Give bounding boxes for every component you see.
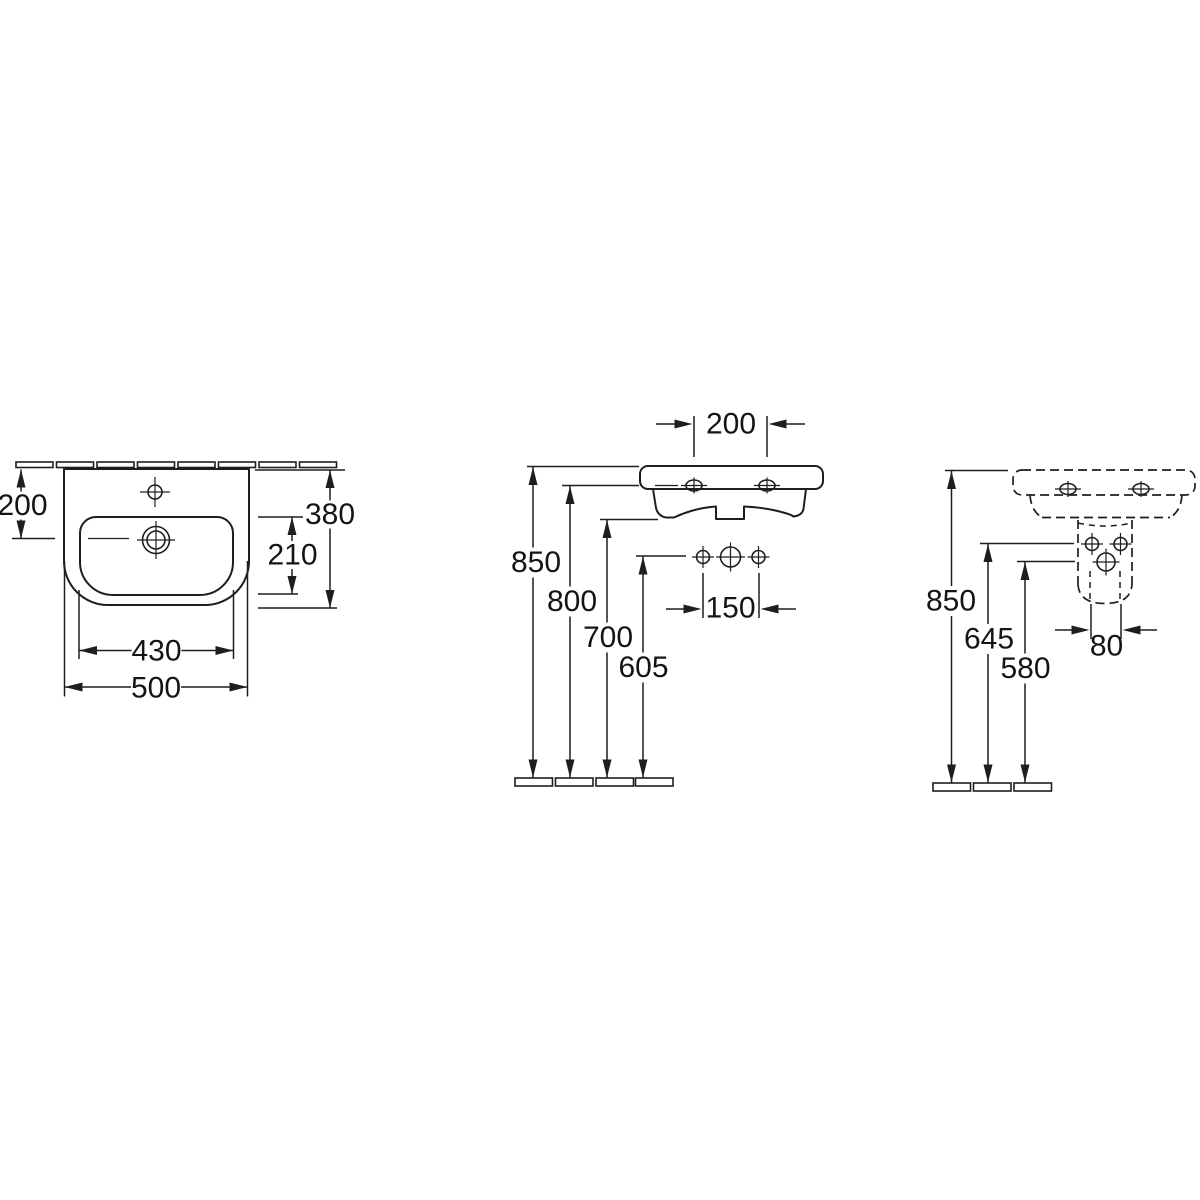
technical-drawing-canvas: 200 380 210 (0, 0, 1200, 1200)
dim-label-height-fixing-holes: 800 (547, 585, 597, 618)
dim-label-overall-width: 500 (131, 672, 181, 705)
wall-bar (259, 462, 296, 468)
dim-label-height-rim: 850 (926, 585, 976, 618)
body-hidden-left (1030, 495, 1042, 518)
arrow-down (1021, 765, 1030, 783)
drain-symbol (88, 521, 175, 559)
side-view: 200 850 800 700 (511, 408, 823, 787)
arrow-right (684, 605, 702, 614)
arrow-down (603, 760, 612, 778)
wall-bar (138, 462, 175, 468)
wall-bar (97, 462, 134, 468)
dim-height-underside: 700 (583, 520, 658, 778)
floor-hatch-rear (933, 783, 1052, 791)
dim-wall-to-drain: 200 (0, 470, 55, 539)
connection-holes (1081, 533, 1132, 576)
plan-view: 200 380 210 (0, 462, 355, 705)
floor-bar (933, 783, 971, 791)
floor-bar (596, 778, 634, 786)
tap-hole-symbol (140, 477, 170, 507)
arrow-down (947, 765, 956, 783)
column-bottom (1078, 584, 1132, 604)
wall-bar (16, 462, 53, 468)
floor-bar (556, 778, 594, 786)
floor-bar (974, 783, 1012, 791)
wall-bar (300, 462, 337, 468)
arrow-left (65, 683, 83, 692)
body-underside (653, 489, 794, 519)
floor-bar (515, 778, 553, 786)
arrow-up (947, 471, 956, 489)
dim-label-overall-depth: 380 (305, 498, 355, 531)
dim-label-waste-width: 80 (1090, 630, 1123, 663)
arrow-up (603, 520, 612, 538)
arrow-up (17, 470, 26, 488)
dim-label-bowl-width: 430 (131, 635, 181, 668)
arrow-up (529, 467, 538, 485)
wall-hatch (16, 462, 337, 468)
dim-label-height-underside: 700 (583, 621, 633, 654)
rim-hidden-outline (1013, 470, 1195, 495)
fixing-hole-right-symbol (754, 478, 780, 494)
arrow-down (639, 760, 648, 778)
dim-label-connection-spacing: 150 (705, 592, 755, 625)
dim-height-waste: 580 (1000, 562, 1075, 783)
rear-view: 850 645 580 80 (926, 470, 1195, 791)
dim-waste-width: 80 (1055, 604, 1157, 663)
arrow-down (17, 521, 26, 539)
floor-bar (636, 778, 674, 786)
dim-connection-spacing: 150 (666, 573, 796, 625)
arrow-down (529, 760, 538, 778)
body-right-side (794, 489, 807, 517)
arrow-up (326, 470, 335, 488)
arrow-down (984, 765, 993, 783)
arrow-left (761, 605, 779, 614)
wall-bar (219, 462, 256, 468)
dim-label-bowl-depth: 210 (267, 539, 317, 572)
dim-label-height-rim: 850 (511, 546, 561, 579)
dim-overall-width: 500 (65, 561, 248, 705)
dim-bowl-width: 430 (79, 590, 234, 668)
arrow-right (1072, 626, 1090, 635)
dim-height-connections: 605 (618, 556, 686, 778)
arrow-right (216, 646, 234, 655)
wall-bar (57, 462, 94, 468)
arrow-down (288, 576, 297, 594)
arrow-up (566, 486, 575, 504)
arrow-right (230, 683, 248, 692)
dim-label-height-connections: 605 (618, 651, 668, 684)
arrow-left (79, 646, 97, 655)
arrow-left (1123, 626, 1141, 635)
floor-bar (1014, 783, 1052, 791)
wall-bar (178, 462, 215, 468)
dim-label-height-connections: 645 (964, 623, 1014, 656)
floor-hatch-side (515, 778, 673, 786)
dim-label-height-waste: 580 (1000, 652, 1050, 685)
column-top (1078, 523, 1132, 526)
body-hidden-right (1170, 495, 1182, 518)
arrow-right (675, 420, 693, 429)
dim-hole-spacing: 200 (656, 408, 805, 458)
arrow-up (288, 517, 297, 535)
dim-label-wall-to-drain: 200 (0, 489, 48, 522)
dim-label-hole-spacing: 200 (706, 408, 756, 441)
arrow-up (1021, 562, 1030, 580)
arrow-up (984, 544, 993, 562)
connection-holes (692, 543, 770, 572)
arrow-down (566, 760, 575, 778)
arrow-up (639, 557, 648, 575)
arrow-left (769, 420, 787, 429)
arrow-down (326, 590, 335, 608)
washbasin-installation-drawing: 200 380 210 (0, 0, 1200, 1200)
fixing-hole-left-symbol (681, 478, 707, 494)
